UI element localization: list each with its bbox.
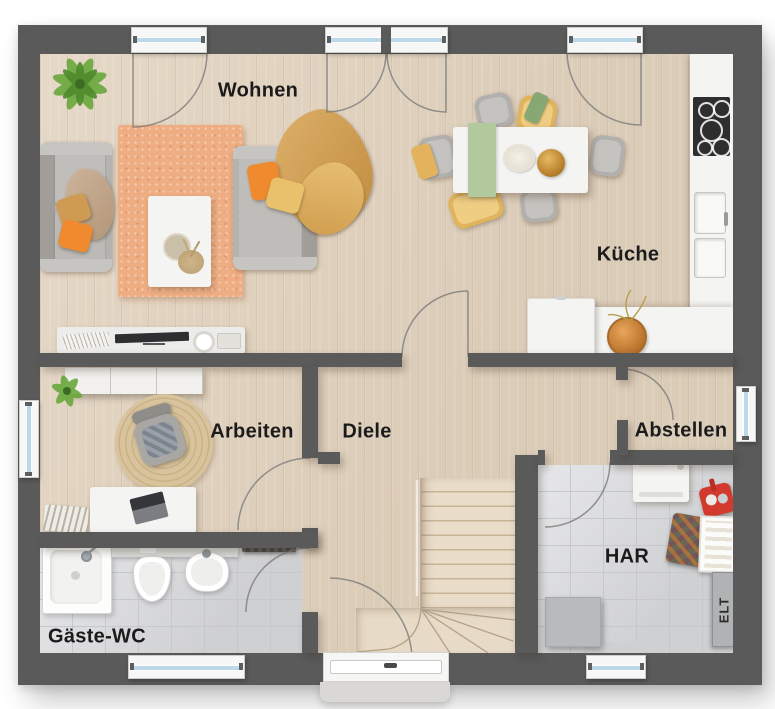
- interior-wall: [468, 353, 733, 367]
- window: [19, 400, 39, 478]
- window: [128, 655, 245, 679]
- door-arc: [330, 578, 412, 660]
- exterior-wall-right: [733, 25, 762, 685]
- entrance-step: [320, 682, 450, 702]
- interior-wall-stub: [318, 452, 340, 464]
- door-handle: [384, 663, 397, 668]
- door-arc: [327, 53, 386, 112]
- interior-wall: [515, 455, 538, 653]
- door-arc: [402, 291, 468, 357]
- interior-wall: [610, 450, 733, 465]
- floor-plan: ELT: [0, 0, 775, 709]
- room-label-gaeste-wc: Gäste-WC: [48, 626, 146, 649]
- interior-wall: [538, 450, 545, 465]
- exterior-wall-left: [18, 25, 40, 685]
- door-arc: [387, 53, 446, 112]
- door-arc: [567, 53, 641, 125]
- door-leaf-stub: [616, 367, 628, 380]
- interior-wall: [40, 353, 402, 367]
- room-label-wohnen: Wohnen: [218, 80, 298, 103]
- window: [586, 655, 646, 679]
- door-arc: [238, 458, 310, 530]
- window-double: [325, 27, 448, 53]
- interior-wall: [40, 532, 318, 548]
- stair-winder-lines: [357, 478, 515, 653]
- room-label-abstellen: Abstellen: [635, 420, 728, 443]
- window: [567, 27, 643, 53]
- door-arc: [133, 53, 207, 127]
- door-arc: [545, 462, 610, 527]
- room-label-arbeiten: Arbeiten: [210, 421, 294, 444]
- room-label-diele: Diele: [342, 421, 391, 444]
- entrance-door: [323, 652, 449, 682]
- interior-wall: [617, 420, 628, 455]
- door-arc: [622, 369, 673, 420]
- room-label-har: HAR: [605, 546, 649, 569]
- interior-wall: [302, 367, 318, 458]
- window: [131, 27, 207, 53]
- interior-wall: [302, 612, 318, 653]
- flower-sprig: [608, 290, 646, 321]
- door-arc: [246, 548, 310, 612]
- room-label-kueche: Küche: [597, 244, 660, 267]
- window: [736, 386, 756, 442]
